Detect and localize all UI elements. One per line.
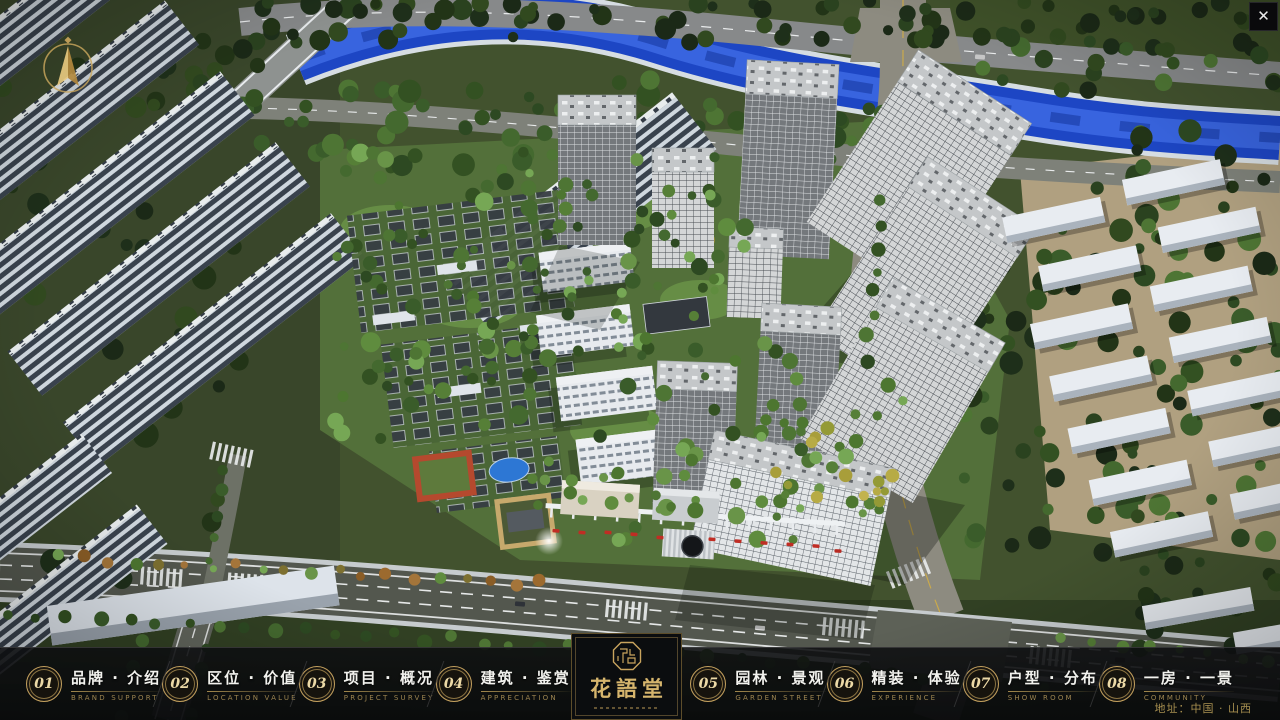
- nav-item-interior[interactable]: 06 精装 · 体验 EXPERIENCE: [827, 648, 962, 720]
- gold-divider: [481, 691, 571, 692]
- nav-number-badge: 03: [299, 666, 335, 702]
- nav-number-badge: 04: [436, 666, 472, 702]
- nav-number-badge: 08: [1099, 666, 1135, 702]
- nav-sublabel: GARDEN STREET: [735, 694, 823, 702]
- nav-label: 建筑 · 鉴赏: [481, 667, 571, 688]
- bottom-nav: 01 品牌 · 介绍 BRAND SUPPORT 02 区位 · 价值 LOCA…: [0, 647, 1280, 720]
- location-caption: 地址：中国 · 山西: [1155, 700, 1253, 716]
- close-icon: ✕: [1257, 7, 1270, 25]
- close-button[interactable]: ✕: [1249, 2, 1278, 31]
- logo-caption-line: [594, 707, 660, 709]
- nav-sublabel: PROJECT SURVEY: [344, 694, 435, 702]
- masterplan-render[interactable]: [0, 0, 1280, 720]
- nav-label: 一房 · 一景: [1144, 667, 1234, 688]
- gold-divider: [71, 691, 161, 692]
- project-logo-title: 花語堂: [585, 673, 668, 703]
- nav-label: 园林 · 景观: [735, 667, 825, 688]
- nav-number-badge: 05: [690, 666, 726, 702]
- nav-sublabel: LOCATION VALUE: [207, 694, 298, 702]
- nav-item-brand[interactable]: 01 品牌 · 介绍 BRAND SUPPORT: [26, 648, 161, 720]
- vignette: [0, 0, 1280, 720]
- gold-divider: [735, 691, 825, 692]
- nav-label: 户型 · 分布: [1008, 667, 1098, 688]
- gold-divider: [872, 691, 962, 692]
- nav-sublabel: SHOW ROOM: [1008, 694, 1074, 702]
- nav-item-floorplan[interactable]: 07 户型 · 分布 SHOW ROOM: [963, 648, 1098, 720]
- nav-group-left: 01 品牌 · 介绍 BRAND SUPPORT 02 区位 · 价值 LOCA…: [0, 648, 571, 720]
- nav-label: 区位 · 价值: [207, 667, 297, 688]
- gold-divider: [1008, 691, 1098, 692]
- nav-sublabel: EXPERIENCE: [872, 694, 938, 702]
- gold-divider: [344, 691, 435, 692]
- nav-label: 品牌 · 介绍: [71, 667, 161, 688]
- gold-divider: [207, 691, 298, 692]
- nav-item-architecture[interactable]: 04 建筑 · 鉴赏 APPRECIATION: [436, 648, 571, 720]
- nav-label: 项目 · 概况: [344, 667, 434, 688]
- project-logo-panel[interactable]: 花語堂: [571, 633, 683, 720]
- presentation-screen: ✕ 01 品牌 · 介绍 BRAND SUPPORT 02 区位 · 价值 LO…: [0, 0, 1280, 720]
- gold-divider: [1144, 691, 1234, 692]
- compass-icon: [40, 34, 96, 96]
- nav-label: 精装 · 体验: [872, 667, 962, 688]
- nav-number-badge: 07: [963, 666, 999, 702]
- seal-icon: [612, 641, 642, 671]
- nav-number-badge: 02: [162, 666, 198, 702]
- nav-item-project[interactable]: 03 项目 · 概况 PROJECT SURVEY: [299, 648, 435, 720]
- scene-svg: [0, 0, 1280, 720]
- nav-number-badge: 06: [827, 666, 863, 702]
- nav-number-badge: 01: [26, 666, 62, 702]
- nav-sublabel: APPRECIATION: [481, 694, 558, 702]
- nav-item-garden[interactable]: 05 园林 · 景观 GARDEN STREET: [690, 648, 825, 720]
- nav-item-location[interactable]: 02 区位 · 价值 LOCATION VALUE: [162, 648, 298, 720]
- nav-sublabel: BRAND SUPPORT: [71, 694, 159, 702]
